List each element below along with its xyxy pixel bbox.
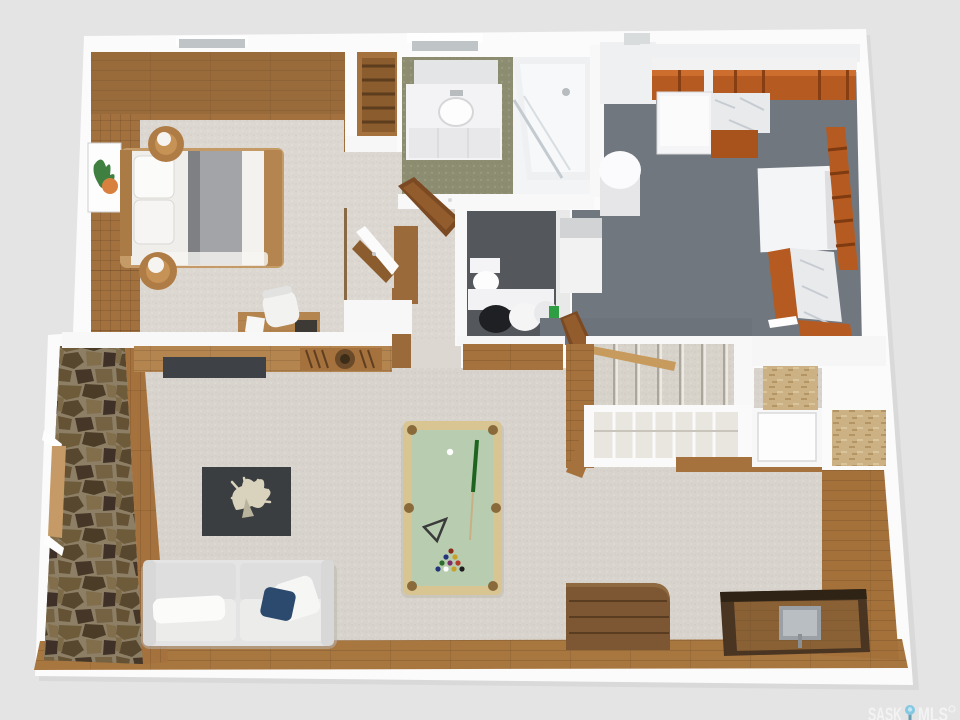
svg-text:SASK: SASK	[868, 705, 902, 720]
svg-text:MLS: MLS	[918, 705, 948, 720]
